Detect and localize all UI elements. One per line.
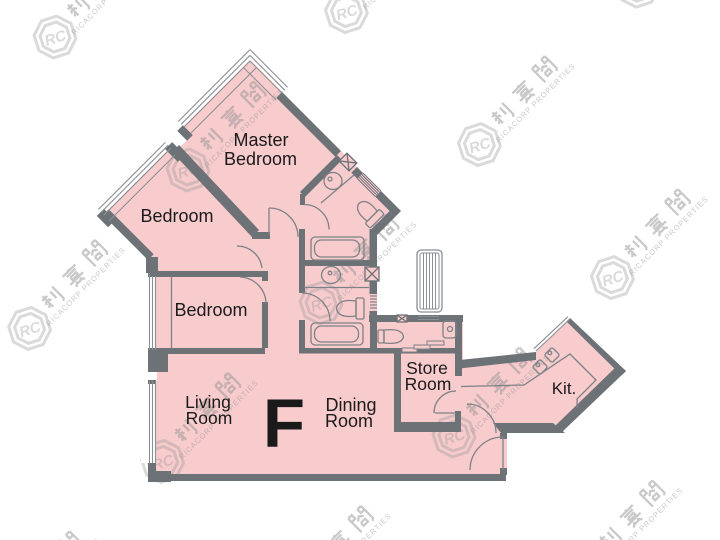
svg-text:F: F <box>263 385 305 462</box>
svg-text:Room: Room <box>405 374 452 394</box>
svg-text:Master: Master <box>233 130 288 150</box>
svg-text:Bedroom: Bedroom <box>140 206 213 226</box>
svg-text:Room: Room <box>186 408 233 428</box>
svg-text:Kit.: Kit. <box>552 379 577 398</box>
svg-text:Bedroom: Bedroom <box>174 300 247 320</box>
svg-text:Bedroom: Bedroom <box>224 149 297 169</box>
svg-text:Room: Room <box>325 411 373 431</box>
